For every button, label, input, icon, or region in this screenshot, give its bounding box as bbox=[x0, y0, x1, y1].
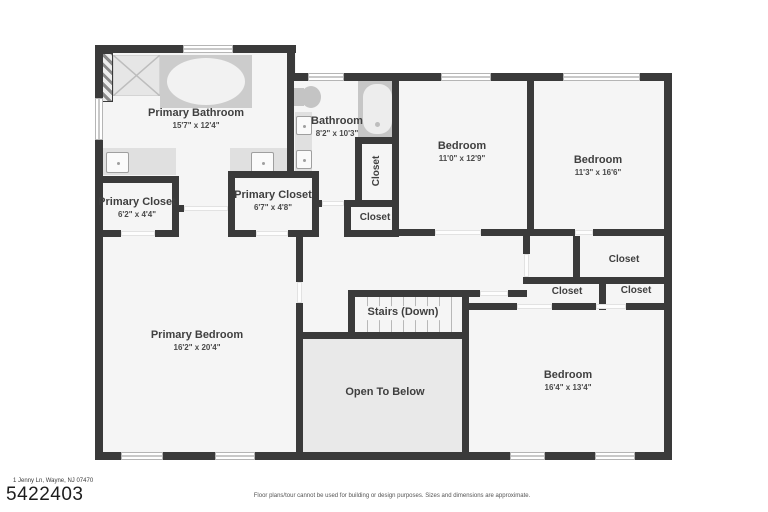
room-dims: 8'2" x 10'3" bbox=[311, 129, 363, 139]
sink bbox=[296, 150, 312, 169]
wall bbox=[593, 229, 672, 236]
room-label-closet-right-mid-right: Closet bbox=[621, 285, 652, 298]
room-dims: 11'0" x 12'9" bbox=[438, 154, 486, 164]
room-name: Bathroom bbox=[311, 115, 363, 129]
room-name: Closet bbox=[371, 156, 384, 187]
wall bbox=[296, 303, 303, 460]
room-name: Primary Bedroom bbox=[151, 329, 243, 343]
room-dims: 11'3" x 16'6" bbox=[574, 168, 622, 178]
wall bbox=[228, 171, 319, 178]
room-name: Open To Below bbox=[345, 386, 424, 400]
room-label-closet-right-top: Closet bbox=[609, 254, 640, 267]
wall bbox=[626, 303, 672, 310]
room-label-bedroom-bottom-right: Bedroom 16'4" x 13'4" bbox=[544, 369, 592, 393]
wall bbox=[95, 176, 179, 183]
wall bbox=[523, 236, 530, 254]
door-opening bbox=[596, 304, 626, 309]
window bbox=[510, 452, 545, 460]
door-opening bbox=[575, 230, 593, 235]
wall bbox=[312, 200, 322, 207]
window bbox=[441, 73, 491, 81]
wall bbox=[344, 200, 399, 207]
wall bbox=[348, 290, 480, 297]
room-name: Closet bbox=[360, 212, 391, 225]
sink bbox=[106, 152, 129, 173]
window bbox=[595, 452, 635, 460]
room-name: Primary Closet bbox=[234, 189, 312, 203]
room-name: Stairs (Down) bbox=[368, 306, 439, 320]
window bbox=[215, 452, 255, 460]
door-opening bbox=[184, 206, 228, 211]
room-dims: 15'7" x 12'4" bbox=[148, 121, 244, 131]
room-name: Bedroom bbox=[544, 369, 592, 383]
wall bbox=[344, 230, 399, 237]
sink bbox=[296, 116, 312, 135]
door-opening bbox=[256, 231, 288, 236]
wall bbox=[95, 230, 121, 237]
wall bbox=[155, 230, 179, 237]
wall bbox=[392, 73, 399, 236]
wall bbox=[552, 303, 596, 310]
room-dims: 16'2" x 20'4" bbox=[151, 343, 243, 353]
door-opening bbox=[297, 282, 302, 303]
listing-number: 5422403 bbox=[6, 484, 83, 506]
wall bbox=[527, 73, 534, 236]
door-opening bbox=[322, 201, 344, 206]
room-label-bathroom: Bathroom 8'2" x 10'3" bbox=[311, 115, 363, 139]
window bbox=[121, 452, 163, 460]
wall bbox=[95, 452, 672, 460]
wall bbox=[399, 229, 435, 236]
room-label-primary-bathroom: Primary Bathroom 15'7" x 12'4" bbox=[148, 107, 244, 131]
room-dims: 6'2" x 4'4" bbox=[98, 210, 176, 220]
shower bbox=[113, 55, 160, 96]
bathtub bbox=[167, 58, 245, 105]
wall bbox=[296, 232, 303, 282]
room-name: Closet bbox=[621, 285, 652, 298]
room-label-primary-closet-right: Primary Closet 6'7" x 4'8" bbox=[234, 189, 312, 213]
wall bbox=[296, 332, 469, 339]
room-name: Bedroom bbox=[438, 140, 486, 154]
room-name: Primary Bathroom bbox=[148, 107, 244, 121]
room-label-primary-closet-left: Primary Closet 6'2" x 4'4" bbox=[98, 196, 176, 220]
room-label-stairs: Stairs (Down) bbox=[364, 306, 443, 320]
window bbox=[183, 45, 233, 53]
toilet bbox=[294, 84, 322, 110]
floor-plan: Primary Bathroom 15'7" x 12'4" Bathroom … bbox=[0, 0, 768, 512]
room-dims: 16'4" x 13'4" bbox=[544, 383, 592, 393]
room-label-bedroom-top-right: Bedroom 11'3" x 16'6" bbox=[574, 154, 622, 178]
bathtub-drain bbox=[375, 122, 380, 127]
wall bbox=[228, 230, 256, 237]
wall bbox=[355, 137, 362, 207]
room-label-closet-right-mid-left: Closet bbox=[552, 286, 583, 299]
window bbox=[563, 73, 640, 81]
room-label-bedroom-top-middle: Bedroom 11'0" x 12'9" bbox=[438, 140, 486, 164]
door-opening bbox=[524, 254, 529, 277]
wall bbox=[462, 290, 469, 460]
wall bbox=[527, 229, 575, 236]
wall bbox=[523, 277, 672, 284]
room-name: Primary Closet bbox=[98, 196, 176, 210]
wall bbox=[287, 53, 294, 178]
window bbox=[308, 73, 344, 81]
room-label-closet-vertical: Closet bbox=[371, 156, 384, 187]
room-label-closet-small: Closet bbox=[360, 212, 391, 225]
door-opening bbox=[435, 230, 481, 235]
wall bbox=[462, 303, 517, 310]
room-name: Closet bbox=[609, 254, 640, 267]
window bbox=[95, 98, 103, 140]
room-name: Closet bbox=[552, 286, 583, 299]
room-label-open-to-below: Open To Below bbox=[345, 386, 424, 400]
sink bbox=[251, 152, 274, 173]
wall bbox=[664, 73, 672, 460]
room-label-primary-bedroom: Primary Bedroom 16'2" x 20'4" bbox=[151, 329, 243, 353]
wall bbox=[481, 229, 528, 236]
door-opening bbox=[517, 304, 552, 309]
room-dims: 6'7" x 4'8" bbox=[234, 203, 312, 213]
room-name: Bedroom bbox=[574, 154, 622, 168]
door-opening bbox=[121, 231, 155, 236]
wall bbox=[508, 290, 527, 297]
door-opening bbox=[480, 291, 508, 296]
disclaimer-text: Floor plans/tour cannot be used for buil… bbox=[254, 493, 531, 499]
wall bbox=[288, 230, 319, 237]
